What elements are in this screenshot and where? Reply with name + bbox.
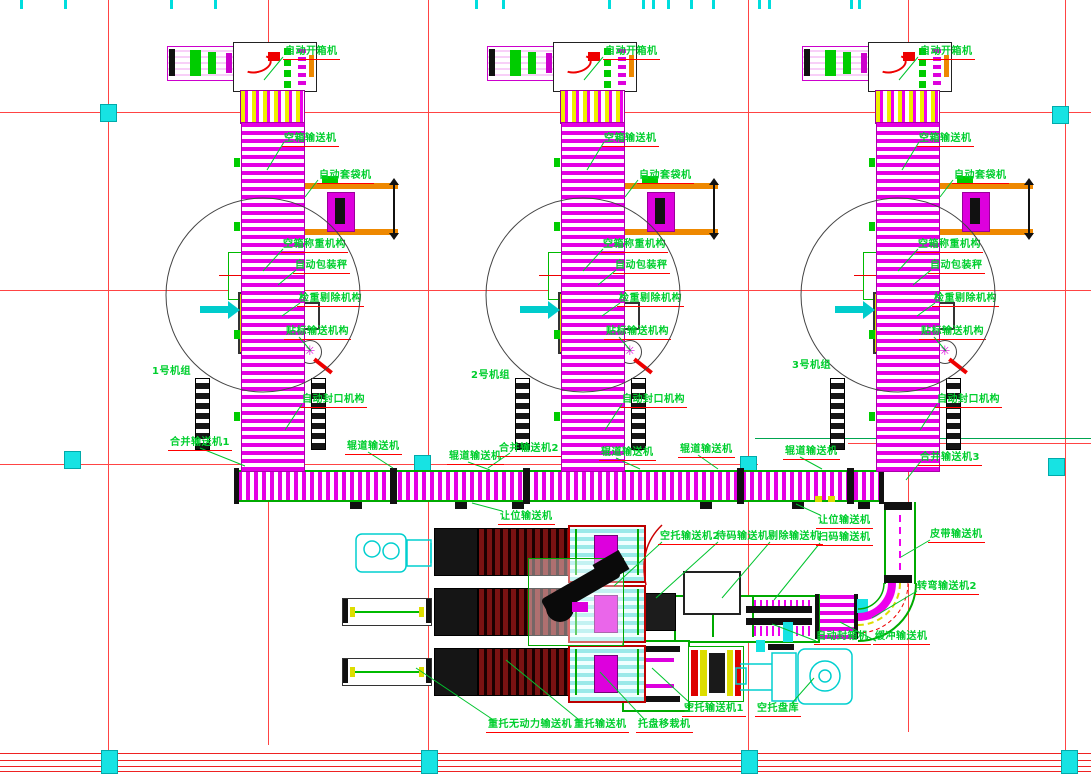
label-auto-sealing: 自动封口机构 [620,394,687,408]
label-checkweigher-reject: 检重剔除机构 [297,293,364,307]
sensor [350,607,355,617]
sensor [234,158,240,167]
infeed-box [683,571,741,615]
connector-bar [768,644,794,650]
wall-marker [741,750,758,774]
arrow-down-icon [1024,233,1034,240]
unit-3: ✳ 自动开箱机 空箱输送机 自动套袋机 空箱称重机构 自动包装秤 检重剔除机构 … [783,0,1083,480]
sensor [869,222,875,231]
label-merge-conveyor-3: 合并输送机3 [918,452,982,466]
unit-conveyor-column [561,122,625,472]
label-loaded-pallet-conveyor: 重托输送机 [572,719,629,733]
robot-detail [572,602,588,612]
bag-slot [335,198,345,224]
dim-tick [768,0,771,9]
sensor [234,222,240,231]
rail-orange [302,183,398,189]
stacker-position-3 [568,645,646,703]
label-empty-box-conveyor: 空箱输送机 [282,133,339,147]
box-green [190,50,201,76]
box-green [825,50,836,76]
label-auto-box-opener: 自动开箱机 [283,46,340,60]
detail-red [903,52,915,61]
unit-1: ✳ 自动开箱机 空箱输送机 自动套袋机 空箱称重机构 自动包装秤 检重剔除机构 … [148,0,448,480]
sealer-rod [746,618,812,625]
belt-cap [884,575,912,583]
box-green [528,52,536,74]
sensor [554,158,560,167]
label-roller-conveyor-5: 辊道输送机 [783,446,840,460]
label-buffer-conveyor: 缓冲输送机 [873,631,930,645]
line-foot [350,502,362,509]
label-empty-box-conveyor: 空箱输送机 [917,133,974,147]
connector-cyan [756,640,765,652]
wall-marker [101,750,118,774]
bar-yellow [700,650,707,696]
label-empty-pallet-conveyor-1: 空托输送机1 [682,703,746,717]
label-labeling-conveyor: 贴标输送机构 [919,326,986,340]
flow-arrow [200,306,228,313]
labeler-arrow [633,358,653,375]
flow-arrow-head-icon [863,301,875,319]
chain-stub-row2 [434,588,478,636]
wall-line-3 [0,766,1091,767]
labeler-arrow [313,358,333,375]
detail-red [268,52,280,61]
cap [426,659,431,683]
arrow-down-icon [389,233,399,240]
label-auto-packing-scale: 自动包装秤 [928,260,985,274]
box-magenta [546,53,552,73]
grid-marker [100,104,117,122]
chain-stub-row3 [434,648,478,696]
sensor [419,607,424,617]
label-barcode-conveyor: 扫码输送机 [816,532,873,546]
box-green [208,52,216,74]
empty-pallet-conveyor-1 [688,646,744,702]
arrow-down-icon [709,233,719,240]
wall-marker [421,750,438,774]
label-empty-box-weighing: 空箱称重机构 [281,239,348,253]
sealer-rod [746,606,812,613]
sensor [869,412,875,421]
sensor-yellow [815,496,822,502]
label-empty-box-weighing: 空箱称重机构 [601,239,668,253]
label-empty-pallet-conveyor-2: 空托输送机2 [658,531,722,545]
label-auto-bagging-machine: 自动套袋机 [637,170,694,184]
box-magenta [226,53,232,73]
line-foot [700,502,712,509]
label-yield-conveyor-2: 让位输送机 [816,515,873,529]
unit-3-name: 3号机组 [790,360,833,373]
belt-conveyor [884,502,916,584]
bagging-machine [622,176,722,238]
sensor [869,158,875,167]
frame [575,649,577,695]
label-auto-sealing: 自动封口机构 [300,394,367,408]
guide-rod [713,185,715,233]
cap [169,49,175,76]
transfer-section [875,90,940,124]
bagging-machine [302,176,402,238]
chain-stub-row1 [434,528,478,576]
dim-tick [20,0,23,9]
label-labeling-conveyor: 贴标输送机构 [604,326,671,340]
rail-orange [937,183,1033,189]
box-green [510,50,521,76]
label-empty-box-weighing: 空箱称重机构 [916,239,983,253]
transfer-section [240,90,305,124]
line-foot [792,502,804,509]
label-curve-conveyor-2: 转弯输送机2 [915,581,979,595]
wall-marker [1061,750,1078,774]
label-empty-box-conveyor: 空箱输送机 [602,133,659,147]
label-reject-conveyor: 剔除输送机 [766,531,823,545]
sensor [554,412,560,421]
bar-black [709,653,725,693]
truck-icon [356,534,431,572]
robot-base [546,594,574,622]
label-pallet-transfer-machine: 托盘移栽机 [636,719,693,733]
label-yield-conveyor-1: 让位输送机 [498,511,555,525]
bar-red [735,650,741,696]
arrow-up-icon [1024,178,1034,185]
box-magenta [861,53,867,73]
centerline [899,504,901,582]
label-checkweigher-reject: 检重剔除机构 [932,293,999,307]
loaded-pallet-conveyor-row3 [478,648,570,696]
unit-2: ✳ 自动开箱机 空箱输送机 自动套袋机 空箱称重机构 自动包装秤 检重剔除机构 … [468,0,768,480]
guide-rod [1028,185,1030,233]
sensor [554,330,560,339]
detail-red [588,52,600,61]
flow-arrow [520,306,548,313]
bar-red [691,650,698,696]
label-checkweigher-reject: 检重剔除机构 [617,293,684,307]
wall-line-2 [0,760,1091,761]
arrow-up-icon [389,178,399,185]
cad-layout-drawing: 1号机组 2号机组 3号机组 合并输送机1 合并输送机2 合并输送机3 辊道输送… [0,0,1091,775]
sensor [419,667,424,677]
sealer-rail-right [631,378,646,450]
cap [489,49,495,76]
grid-marker [64,451,81,469]
frame [637,649,639,695]
labeler-arrow [948,358,968,375]
dim-tick [64,0,67,9]
rail-orange [622,183,718,189]
sensor [869,330,875,339]
sensor [350,667,355,677]
sensor [234,412,240,421]
frame [637,589,639,635]
unit-2-name: 2号机组 [469,370,512,383]
sealer-rail-right [946,378,961,450]
label-auto-packing-scale: 自动包装秤 [293,260,350,274]
flow-arrow-head-icon [228,301,240,319]
sensor [554,222,560,231]
sensor-yellow [828,496,835,502]
line-foot [455,502,467,509]
centerline [351,671,421,673]
frame [637,529,639,575]
bagging-machine [937,176,1037,238]
label-staging-conveyor: 待码输送机 [714,531,771,545]
cap [804,49,810,76]
curve-joint [857,599,868,613]
cap [426,599,431,623]
connector-cyan [783,622,793,642]
arrow-up-icon [709,178,719,185]
sealer-rail-left [830,378,845,450]
transfer-section [560,90,625,124]
sealer-rail-right [311,378,326,450]
label-merge-conveyor-1: 合并输送机1 [168,437,232,451]
centerline [351,611,421,613]
unit-1-name: 1号机组 [150,366,193,379]
label-roller-conveyor-1: 辊道输送机 [345,441,402,455]
label-auto-bagging-machine: 自动套袋机 [317,170,374,184]
bar-yellow [727,650,733,696]
label-auto-packing-scale: 自动包装秤 [613,260,670,274]
bag-slot [655,198,665,224]
label-loaded-pallet-gravity-conveyor: 重托无动力输送机 [486,719,574,733]
wall-line-4 [0,771,1091,772]
flow-arrow-head-icon [548,301,560,319]
label-auto-box-opener: 自动开箱机 [603,46,660,60]
label-roller-conveyor-3: 辊道输送机 [599,447,656,461]
label-empty-pallet-storage: 空托盘库 [755,703,801,717]
label-roller-conveyor-4: 辊道输送机 [678,444,735,458]
pallet-load [594,655,618,693]
box-green [843,52,851,74]
belt-cap [884,502,912,510]
sealer-rail-left [515,378,530,450]
label-auto-bagging-machine: 自动套袋机 [952,170,1009,184]
gravity-conveyor-row2 [342,598,432,626]
forklift-icon [736,649,852,704]
wall-line-1 [0,753,1091,754]
line-foot [512,502,524,509]
label-labeling-conveyor: 贴标输送机构 [284,326,351,340]
sensor [234,330,240,339]
gravity-conveyor-row3 [342,658,432,686]
line-foot [858,502,870,509]
label-belt-conveyor: 皮带输送机 [928,529,985,543]
guide-rod [393,185,395,233]
label-auto-carton-sealer: 自动封箱机 [814,631,871,645]
label-auto-box-opener: 自动开箱机 [918,46,975,60]
label-auto-sealing: 自动封口机构 [935,394,1002,408]
unit-conveyor-column [876,122,940,472]
cap [343,659,348,683]
label-roller-conveyor-2: 辊道输送机 [447,451,504,465]
bag-slot [970,198,980,224]
flow-arrow [835,306,863,313]
cap [343,599,348,623]
label-merge-conveyor-2: 合并输送机2 [497,443,561,457]
unit-conveyor-column [241,122,305,472]
